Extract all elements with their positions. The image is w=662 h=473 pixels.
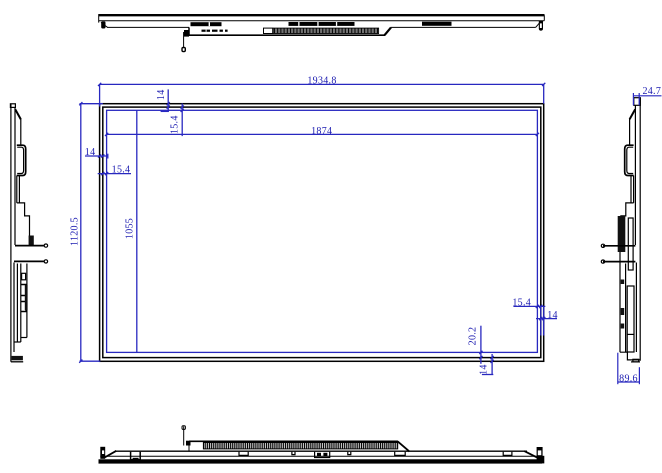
svg-text:14: 14 xyxy=(478,364,489,375)
svg-text:20.2: 20.2 xyxy=(468,327,479,346)
svg-text:1874: 1874 xyxy=(311,126,332,137)
svg-text:89.6: 89.6 xyxy=(619,373,638,384)
svg-text:1934.8: 1934.8 xyxy=(307,76,336,87)
svg-text:14: 14 xyxy=(547,310,558,321)
svg-text:15.4: 15.4 xyxy=(512,298,531,309)
svg-text:15.4: 15.4 xyxy=(170,115,181,134)
svg-text:14: 14 xyxy=(156,89,167,100)
svg-text:14: 14 xyxy=(85,147,96,158)
svg-text:1120.5: 1120.5 xyxy=(69,217,80,246)
svg-text:1055: 1055 xyxy=(125,218,136,239)
svg-text:15.4: 15.4 xyxy=(112,165,131,176)
